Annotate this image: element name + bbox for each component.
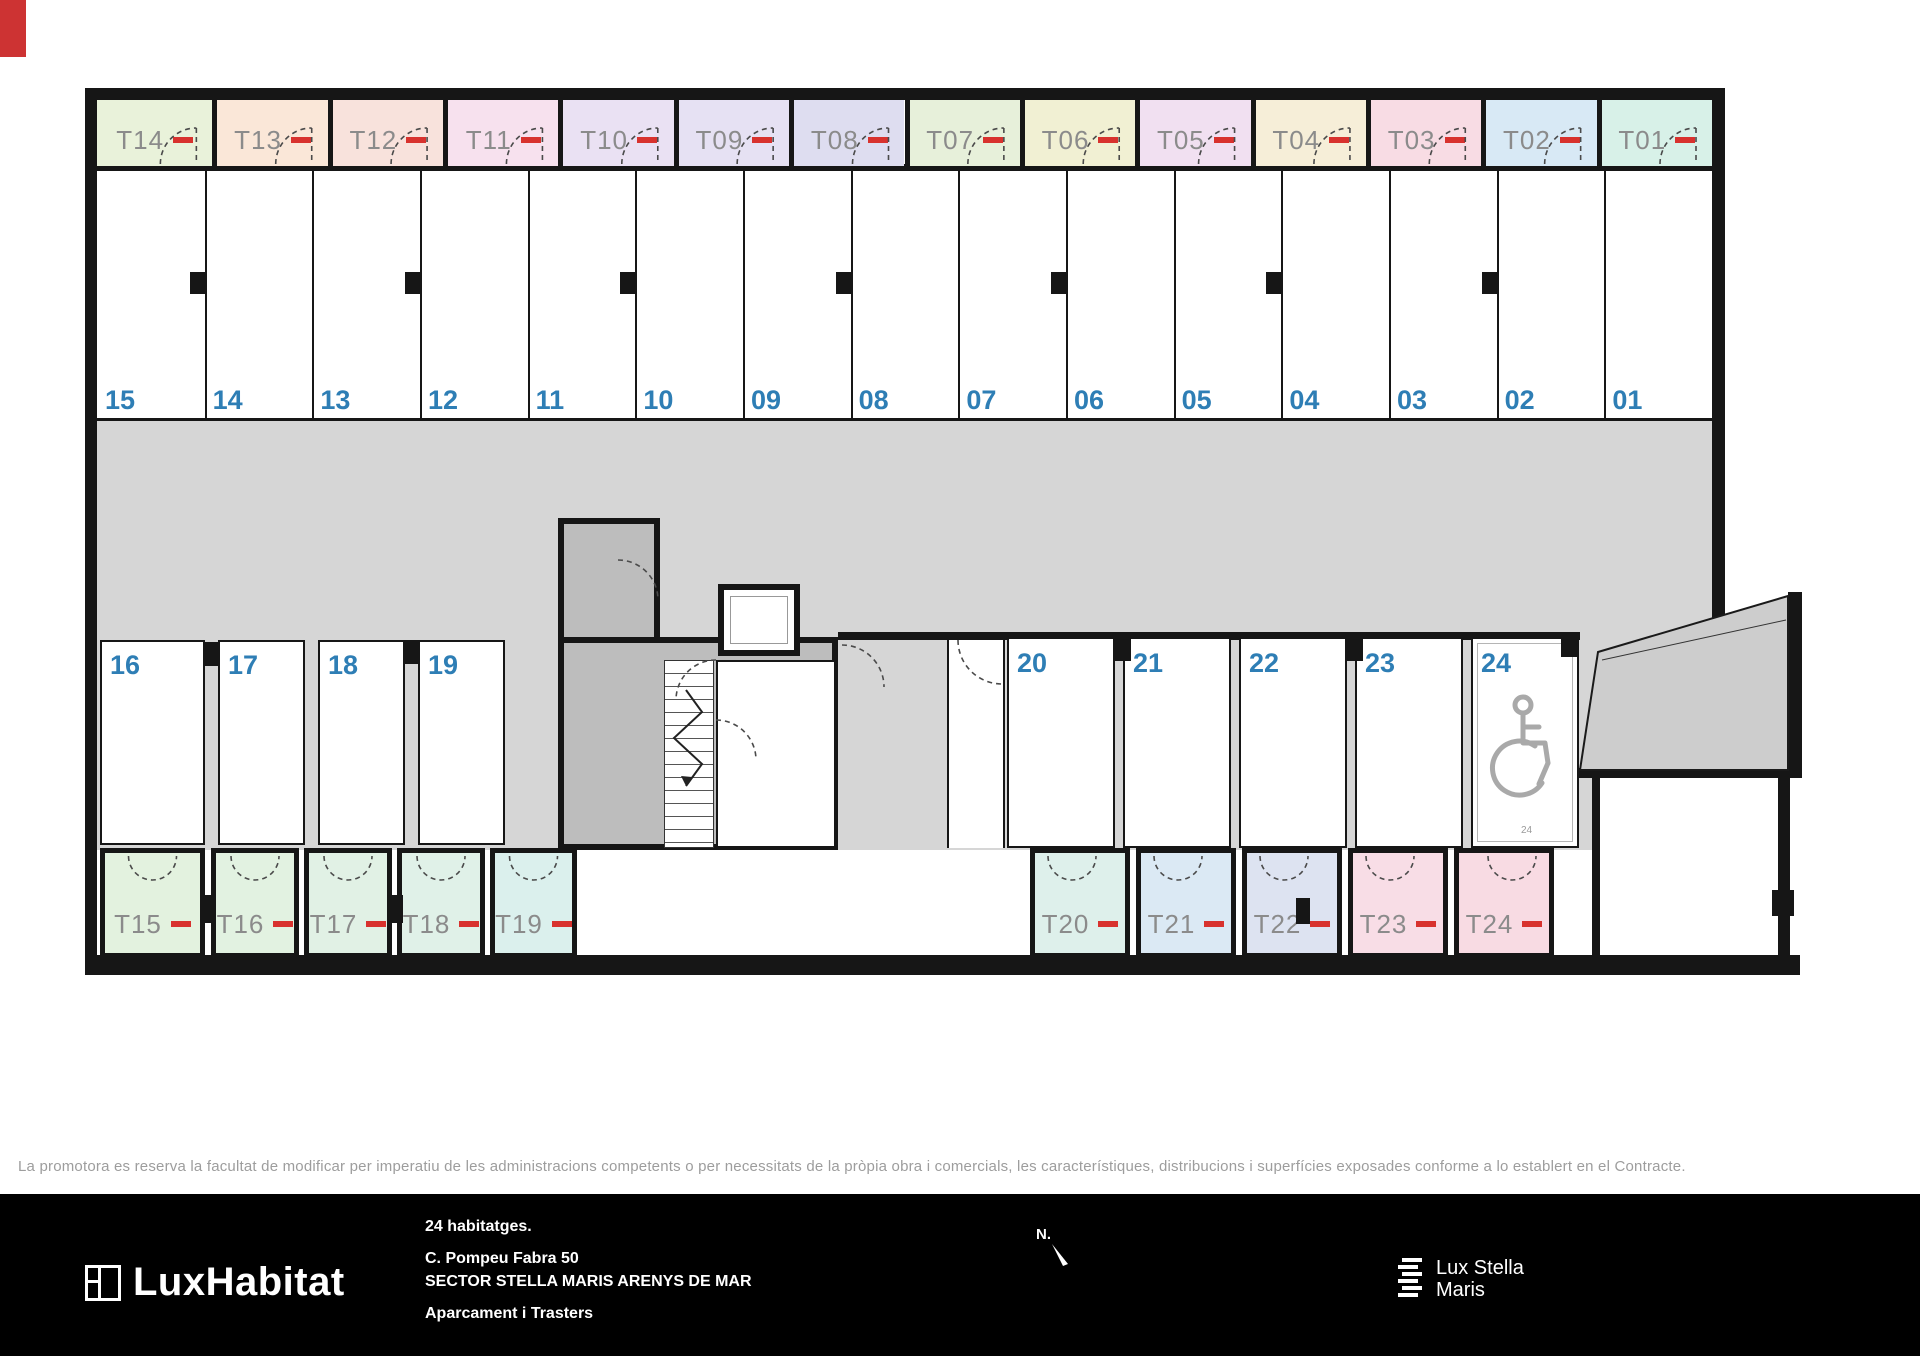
storage-unit: T03 xyxy=(1366,100,1481,166)
storage-unit-label: T06 xyxy=(1042,114,1119,166)
storage-unit: T05 xyxy=(1135,100,1250,166)
column-marker xyxy=(1561,639,1579,657)
storage-unit: T20 xyxy=(1030,848,1130,958)
accessible-space-small-number: 24 xyxy=(1521,825,1532,836)
storage-unit: T24 xyxy=(1454,848,1554,958)
column-marker xyxy=(1482,272,1497,294)
storage-unit-label: T19 xyxy=(495,895,572,953)
parking-space-number: 01 xyxy=(1612,387,1642,414)
parking-space-number: 20 xyxy=(1017,650,1047,677)
north-indicator: N. xyxy=(1036,1226,1051,1243)
parking-space-number: 18 xyxy=(328,652,358,679)
storage-unit-label: T07 xyxy=(926,114,1003,166)
disclaimer-text: La promotora es reserva la facultat de m… xyxy=(18,1158,1908,1175)
parking-space-number: 07 xyxy=(966,387,996,414)
parking-space-number: 12 xyxy=(428,387,458,414)
storage-unit: T02 xyxy=(1481,100,1596,166)
storage-unit-label: T15 xyxy=(114,895,191,953)
column-marker xyxy=(190,272,205,294)
red-dash-icon xyxy=(1445,137,1465,143)
parking-space-number: 17 xyxy=(228,652,258,679)
column-marker xyxy=(620,272,635,294)
parking-space xyxy=(743,171,851,418)
red-dash-icon xyxy=(1416,921,1436,927)
storage-unit-label: T18 xyxy=(403,895,480,953)
wheelchair-icon xyxy=(1487,691,1567,816)
parking-space xyxy=(420,171,528,418)
wall-room-right xyxy=(1778,768,1790,968)
parking-space xyxy=(97,171,205,418)
storage-unit: T11 xyxy=(443,100,558,166)
parking-space-number: 03 xyxy=(1397,387,1427,414)
storage-unit: T19 xyxy=(490,848,577,958)
column-marker xyxy=(836,272,851,294)
parking-space xyxy=(851,171,959,418)
parking-space xyxy=(958,171,1066,418)
storage-unit-label: T05 xyxy=(1157,114,1234,166)
parking-space-number: 10 xyxy=(643,387,673,414)
storage-unit-label: T22 xyxy=(1254,895,1331,953)
red-dash-icon xyxy=(1214,137,1234,143)
parking-space-number: 06 xyxy=(1074,387,1104,414)
red-dash-icon xyxy=(1098,921,1118,927)
red-dash-icon xyxy=(1098,137,1118,143)
parking-space-number: 23 xyxy=(1365,650,1395,677)
storage-unit: T12 xyxy=(328,100,443,166)
project-units: 24 habitatges. xyxy=(425,1218,752,1236)
column-marker xyxy=(205,642,219,666)
storage-unit: T08 xyxy=(789,100,904,166)
wall-room-top xyxy=(1578,768,1800,778)
north-needle-icon xyxy=(1050,1242,1074,1270)
storage-unit-label: T11 xyxy=(466,114,541,166)
project-address: C. Pompeu Fabra 50 xyxy=(425,1250,752,1268)
storage-unit: T01 xyxy=(1597,100,1712,166)
project-info: 24 habitatges. C. Pompeu Fabra 50 SECTOR… xyxy=(425,1218,752,1323)
storage-unit: T18 xyxy=(397,848,485,958)
red-dash-icon xyxy=(173,137,193,143)
storage-unit-label: T24 xyxy=(1466,895,1543,953)
lane-edge xyxy=(97,418,1712,421)
storage-unit: T15 xyxy=(100,848,205,958)
storage-unit-label: T08 xyxy=(811,114,888,166)
column-marker xyxy=(1051,272,1066,294)
wall-ramp-right xyxy=(1788,592,1802,778)
red-dash-icon xyxy=(171,921,191,927)
landing-area xyxy=(572,850,1032,955)
lux-stella-maris-logo: Lux Stella Maris xyxy=(1396,1256,1524,1302)
parking-space xyxy=(205,171,313,418)
parking-space-number: 19 xyxy=(428,652,458,679)
red-dash-icon xyxy=(1560,137,1580,143)
storage-unit: T21 xyxy=(1136,848,1236,958)
column-marker xyxy=(405,640,419,664)
storage-unit: T17 xyxy=(304,848,392,958)
storage-unit: T09 xyxy=(674,100,789,166)
pedestrian-strip xyxy=(947,637,1005,848)
storage-unit: T22 xyxy=(1242,848,1342,958)
red-dash-icon xyxy=(459,921,479,927)
storage-unit-label: T21 xyxy=(1148,895,1225,953)
parking-space-number: 14 xyxy=(213,387,243,414)
red-dash-icon xyxy=(637,137,657,143)
storage-unit-label: T13 xyxy=(234,114,311,166)
elevator-car xyxy=(730,596,788,644)
lux-stella-icon xyxy=(1396,1256,1426,1302)
storage-unit-label: T01 xyxy=(1618,114,1695,166)
storage-unit-label: T16 xyxy=(217,895,294,953)
storage-unit-label: T02 xyxy=(1503,114,1580,166)
storage-unit-label: T14 xyxy=(116,114,193,166)
storage-unit: T23 xyxy=(1348,848,1448,958)
storage-unit: T07 xyxy=(905,100,1020,166)
elevator xyxy=(718,584,800,656)
red-dash-icon xyxy=(1204,921,1224,927)
storage-unit: T06 xyxy=(1020,100,1135,166)
red-dash-icon xyxy=(1310,921,1330,927)
column-marker xyxy=(388,895,403,923)
red-dash-icon xyxy=(1675,137,1695,143)
column-marker xyxy=(1266,272,1281,294)
red-dash-icon xyxy=(752,137,772,143)
parking-space xyxy=(528,171,636,418)
parking-space xyxy=(1604,171,1712,418)
driving-lane xyxy=(97,420,1712,652)
parking-space-number: 21 xyxy=(1133,650,1163,677)
wall-right xyxy=(1712,88,1725,618)
red-dash-icon xyxy=(552,921,572,927)
red-dash-icon xyxy=(366,921,386,927)
red-dash-icon xyxy=(291,137,311,143)
red-dash-icon xyxy=(868,137,888,143)
parking-space xyxy=(1389,171,1497,418)
luxhabitat-logo: LuxHabitat xyxy=(85,1260,345,1305)
parking-space xyxy=(1174,171,1282,418)
column-marker xyxy=(1296,898,1310,924)
parking-space-number: 09 xyxy=(751,387,781,414)
storage-unit: T14 xyxy=(97,100,212,166)
red-dash-icon xyxy=(1522,921,1542,927)
wall-left xyxy=(85,88,97,975)
wall-bottom xyxy=(85,955,1800,975)
storage-unit-label: T04 xyxy=(1272,114,1349,166)
column-marker xyxy=(1772,890,1794,916)
column-marker xyxy=(1115,639,1131,661)
storage-unit: T13 xyxy=(212,100,327,166)
storage-unit: T16 xyxy=(211,848,299,958)
lux-stella-wordmark: Lux Stella Maris xyxy=(1436,1257,1524,1301)
storage-unit-label: T12 xyxy=(349,114,426,166)
storage-unit-label: T23 xyxy=(1360,895,1437,953)
column-marker xyxy=(200,895,215,923)
wall-top xyxy=(85,88,1725,100)
stairs xyxy=(664,660,714,848)
project-type: Aparcament i Trasters xyxy=(425,1305,752,1323)
parking-space-number: 22 xyxy=(1249,650,1279,677)
core-room xyxy=(716,660,836,848)
red-dash-icon xyxy=(1329,137,1349,143)
storage-unit-label: T20 xyxy=(1042,895,1119,953)
side-room xyxy=(1600,775,1778,958)
column-marker xyxy=(1347,639,1363,661)
parking-space xyxy=(1281,171,1389,418)
corner-tab xyxy=(0,0,26,57)
parking-space xyxy=(1066,171,1174,418)
parking-space-number: 13 xyxy=(320,387,350,414)
parking-space-number: 16 xyxy=(110,652,140,679)
storage-unit: T04 xyxy=(1251,100,1366,166)
parking-space-number: 05 xyxy=(1182,387,1212,414)
red-dash-icon xyxy=(406,137,426,143)
luxhabitat-icon xyxy=(85,1265,121,1301)
parking-space-number: 02 xyxy=(1505,387,1535,414)
parking-space-number: 08 xyxy=(859,387,889,414)
storage-unit-label: T09 xyxy=(696,114,773,166)
parking-space xyxy=(312,171,420,418)
parking-space xyxy=(635,171,743,418)
storage-unit: T10 xyxy=(558,100,673,166)
storage-unit-label: T10 xyxy=(580,114,657,166)
red-dash-icon xyxy=(983,137,1003,143)
parking-space-number: 11 xyxy=(536,387,565,414)
red-dash-icon xyxy=(521,137,541,143)
north-label: N. xyxy=(1036,1226,1051,1243)
luxhabitat-wordmark: LuxHabitat xyxy=(133,1260,345,1305)
parking-space-number: 24 xyxy=(1481,650,1511,677)
column-marker xyxy=(405,272,420,294)
red-dash-icon xyxy=(273,921,293,927)
wall-room-left xyxy=(1592,768,1600,968)
storage-unit-label: T17 xyxy=(310,895,387,953)
parking-space-number: 15 xyxy=(105,387,135,414)
storage-unit-label: T03 xyxy=(1388,114,1465,166)
parking-space-number: 04 xyxy=(1289,387,1319,414)
project-sector: SECTOR STELLA MARIS ARENYS DE MAR xyxy=(425,1273,752,1291)
parking-space xyxy=(1497,171,1605,418)
